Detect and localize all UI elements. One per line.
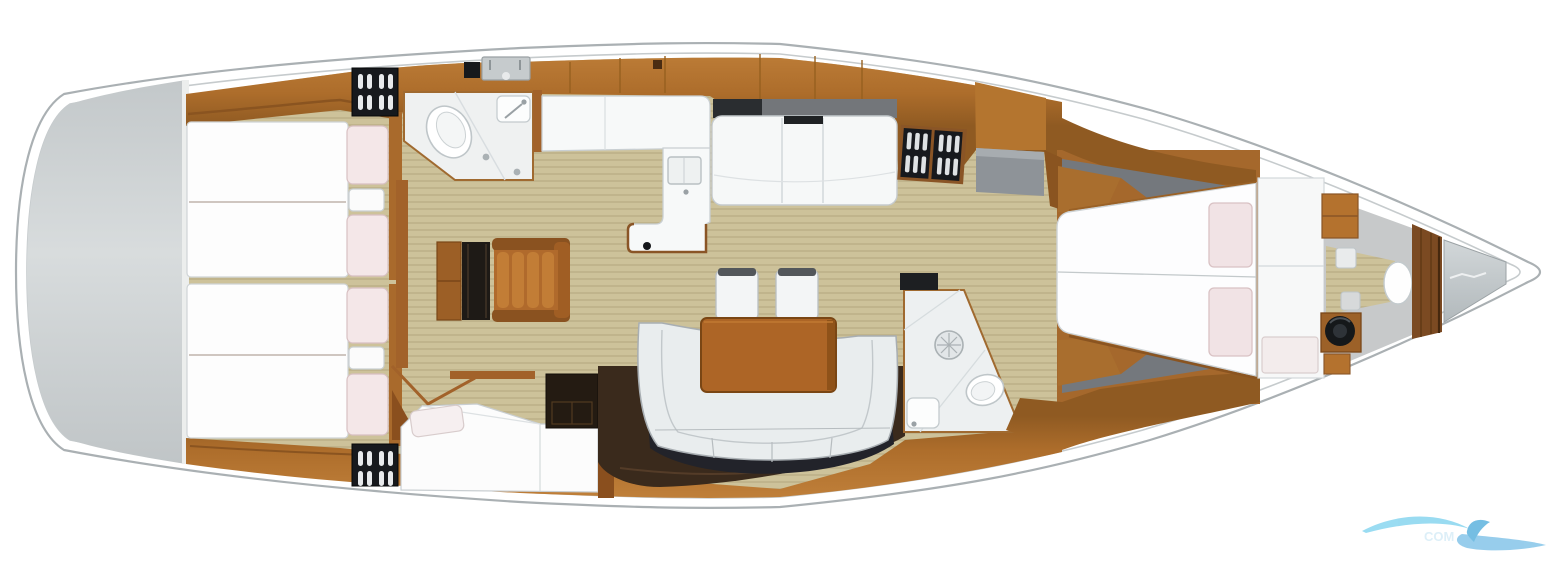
svg-text:COM: COM bbox=[1424, 529, 1454, 544]
